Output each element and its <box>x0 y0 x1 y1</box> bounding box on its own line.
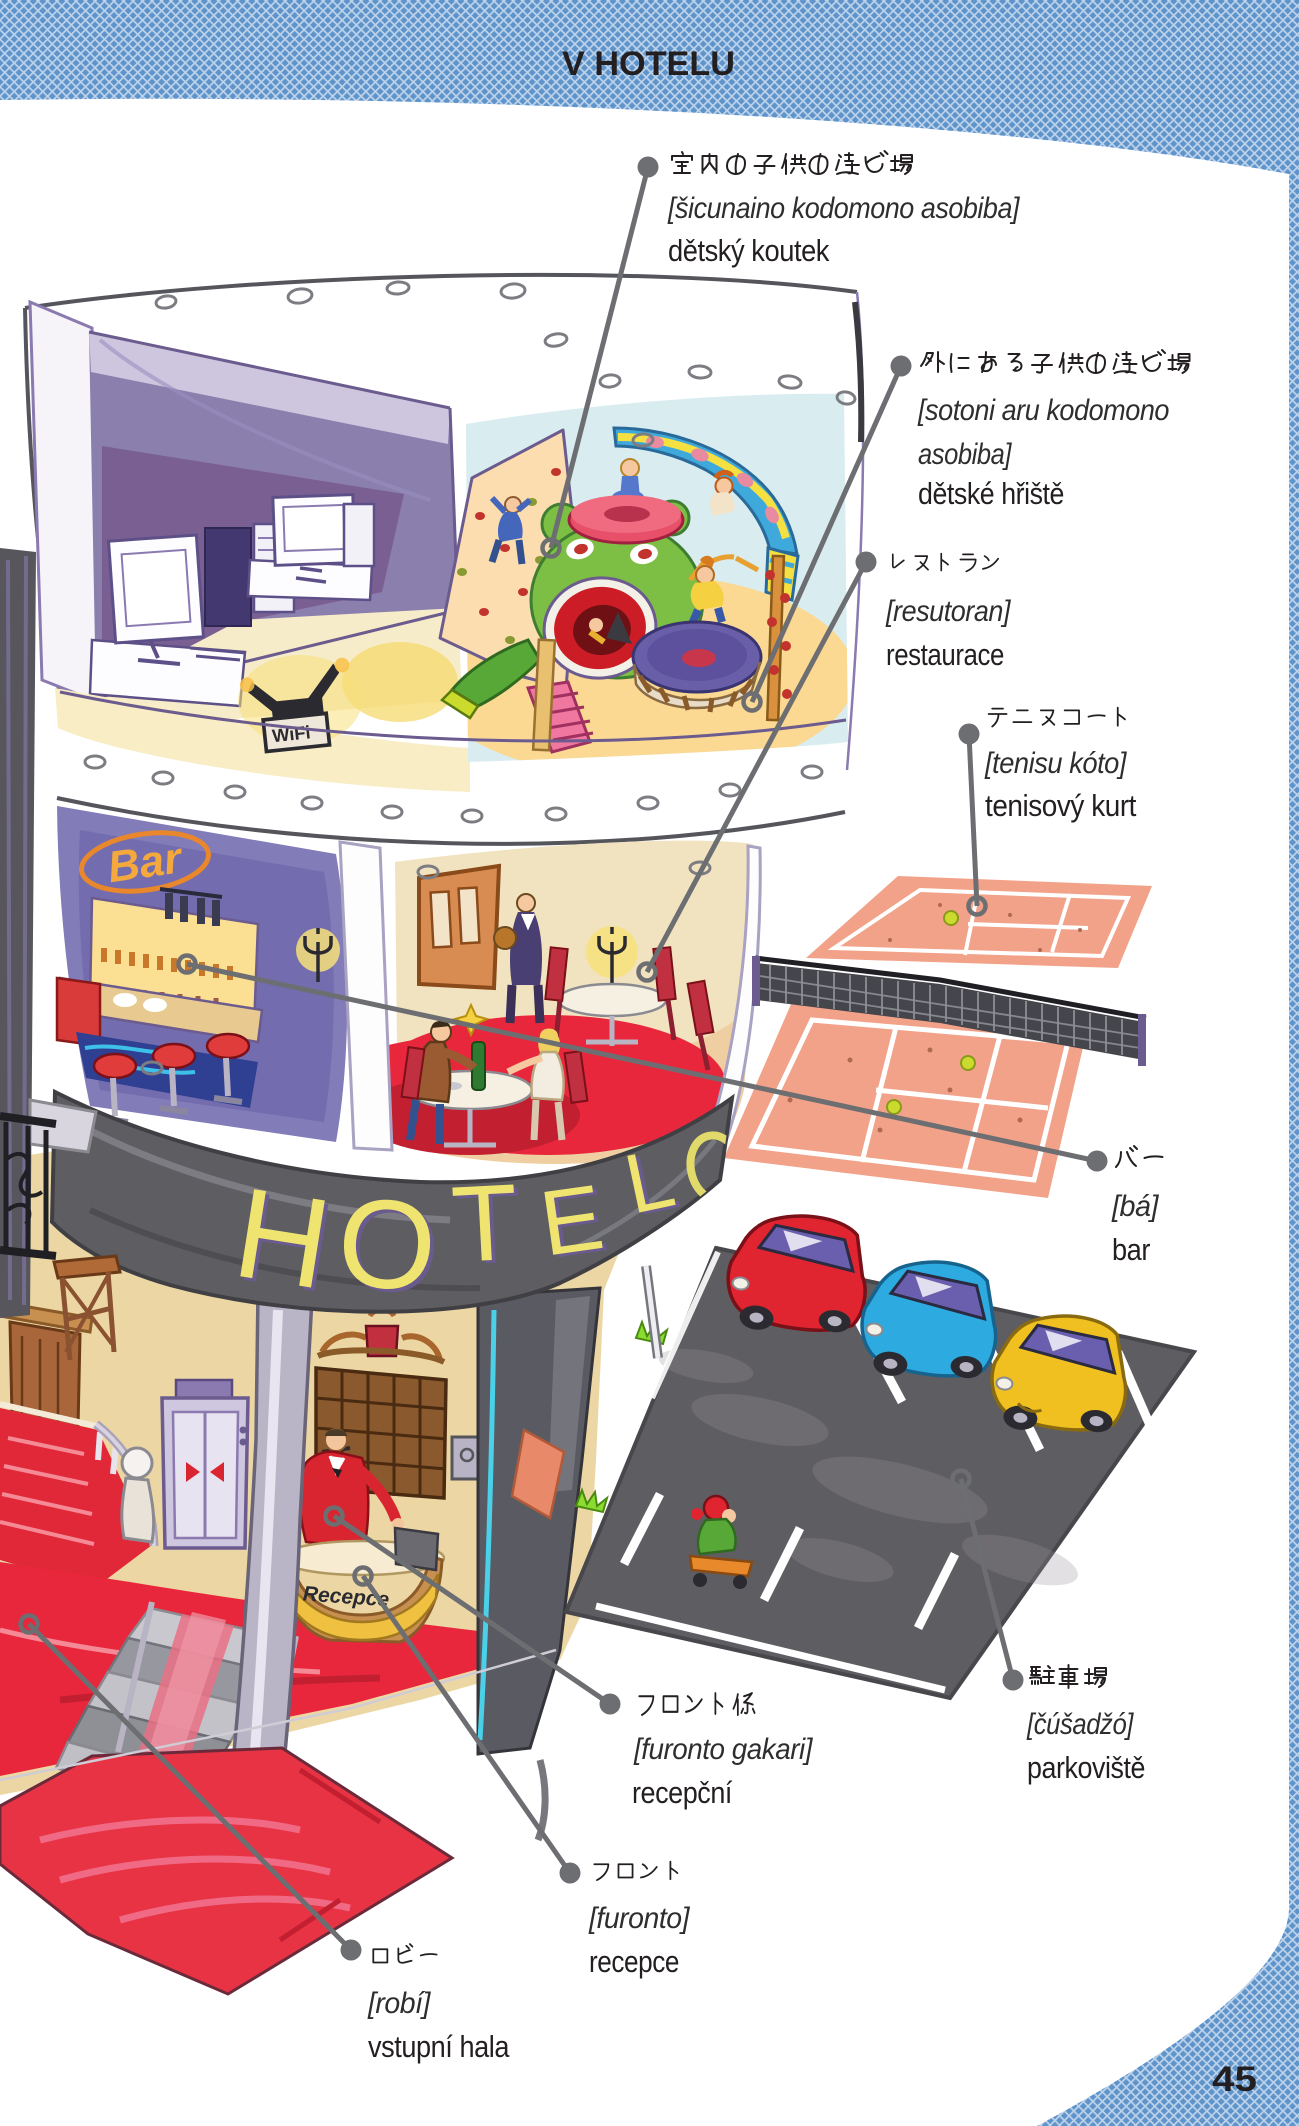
svg-text:bar: bar <box>1112 1232 1150 1267</box>
svg-text:[šicunaino kodomono asobiba]: [šicunaino kodomono asobiba] <box>667 192 1020 225</box>
svg-text:[bá]: [bá] <box>1111 1190 1159 1223</box>
svg-text:[resutoran]: [resutoran] <box>885 595 1011 628</box>
svg-text:asobiba]: asobiba] <box>918 438 1012 471</box>
svg-text:[tenisu kóto]: [tenisu kóto] <box>984 747 1127 780</box>
svg-text:recepce: recepce <box>589 1944 679 1979</box>
svg-text:dětské hřiště: dětské hřiště <box>918 476 1064 511</box>
svg-text:O: O <box>333 1171 441 1318</box>
svg-text:recepční: recepční <box>632 1775 733 1810</box>
svg-text:45: 45 <box>1212 2060 1257 2099</box>
svg-text:parkoviště: parkoviště <box>1027 1750 1145 1785</box>
svg-text:tenisový kurt: tenisový kurt <box>985 788 1137 823</box>
svg-text:[sotoni aru kodomono: [sotoni aru kodomono <box>917 394 1169 427</box>
svg-text:vstupní hala: vstupní hala <box>368 2029 510 2064</box>
svg-text:V HOTELU: V HOTELU <box>562 45 735 83</box>
svg-text:restaurace: restaurace <box>886 637 1004 672</box>
svg-text:T: T <box>449 1161 521 1285</box>
svg-text:[furonto gakari]: [furonto gakari] <box>633 1733 813 1766</box>
svg-text:[robí]: [robí] <box>367 1987 431 2020</box>
svg-text:[čúšadžó]: [čúšadžó] <box>1026 1708 1134 1741</box>
svg-text:dětský koutek: dětský koutek <box>668 233 830 268</box>
svg-text:[furonto]: [furonto] <box>588 1902 690 1935</box>
